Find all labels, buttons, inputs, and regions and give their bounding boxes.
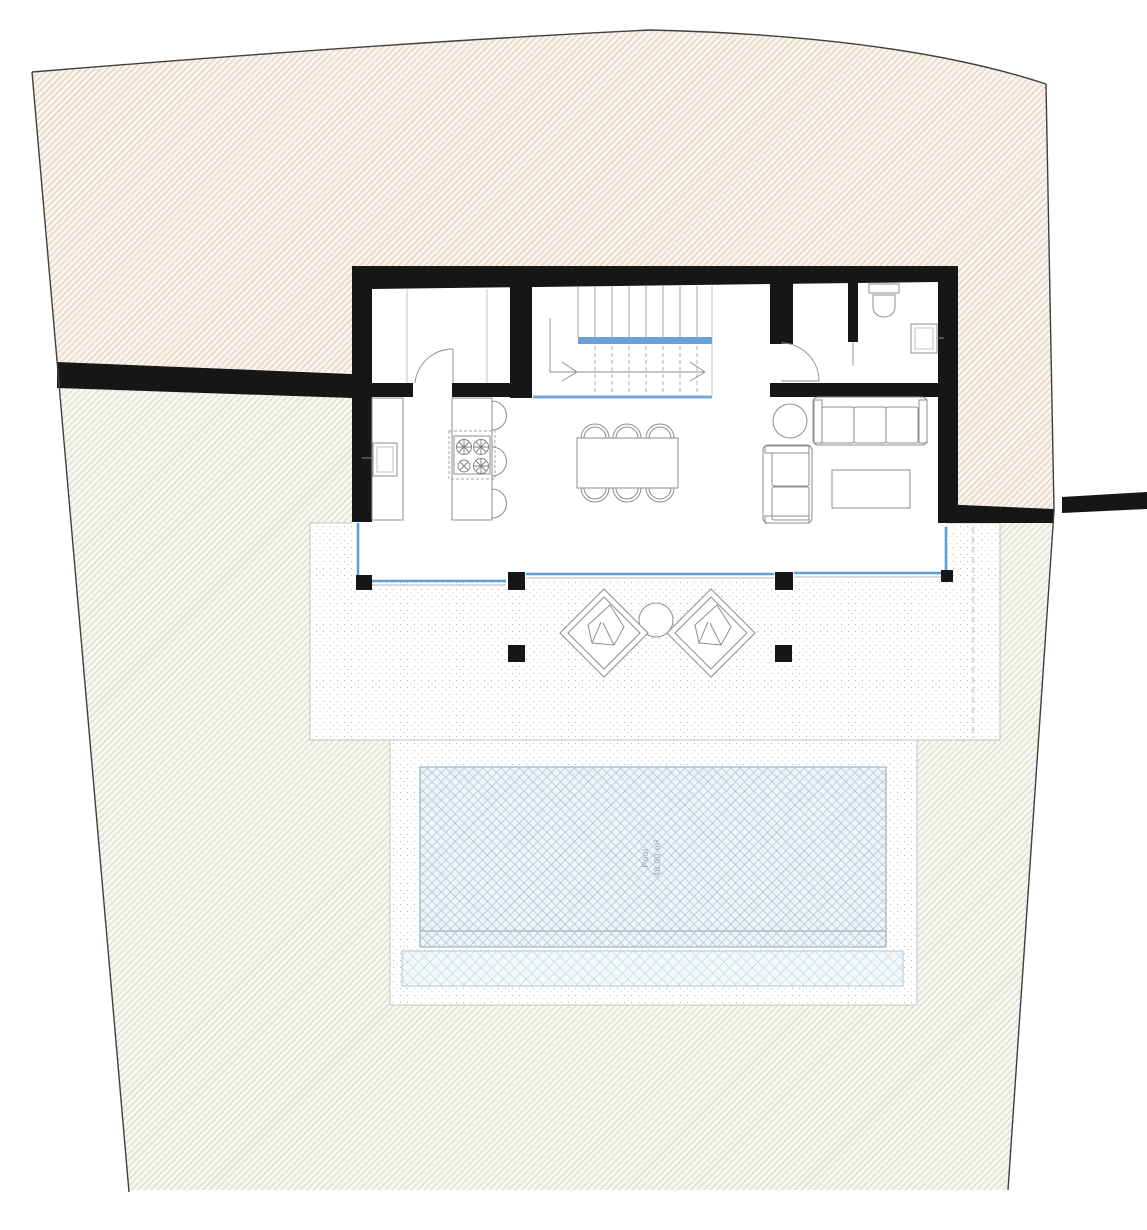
entry-stair-divider-wall xyxy=(510,282,532,398)
stair-bathroom-divider-wall xyxy=(770,280,793,344)
bathroom-partition-wall xyxy=(848,280,858,342)
west-wall xyxy=(352,266,372,522)
floor-plan-viewport: Pool 40.00 m² xyxy=(0,0,1147,1230)
east-boundary-wall-extension xyxy=(1062,492,1147,513)
stair-landing-blue-band xyxy=(578,337,712,344)
east-wall xyxy=(938,266,958,505)
facade-column xyxy=(356,575,372,590)
pool-label-name: Pool xyxy=(640,848,650,867)
facade-column xyxy=(775,572,793,590)
swimming-pool: Pool 40.00 m² xyxy=(402,767,903,986)
floor-plan-canvas: Pool 40.00 m² xyxy=(0,0,1147,1230)
terrace-column xyxy=(775,645,792,662)
pool-overflow-channel xyxy=(402,951,903,986)
entry-south-wall-right xyxy=(452,383,532,397)
pool-label-area: 40.00 m² xyxy=(652,839,662,877)
facade-column xyxy=(941,570,953,582)
dining-table xyxy=(577,438,678,488)
house xyxy=(352,266,958,590)
facade-column xyxy=(508,572,525,590)
terrace-column xyxy=(508,645,525,662)
entry-south-wall-left xyxy=(372,383,413,397)
house-floor-lower xyxy=(352,505,946,580)
bathroom-south-wall xyxy=(770,383,938,397)
